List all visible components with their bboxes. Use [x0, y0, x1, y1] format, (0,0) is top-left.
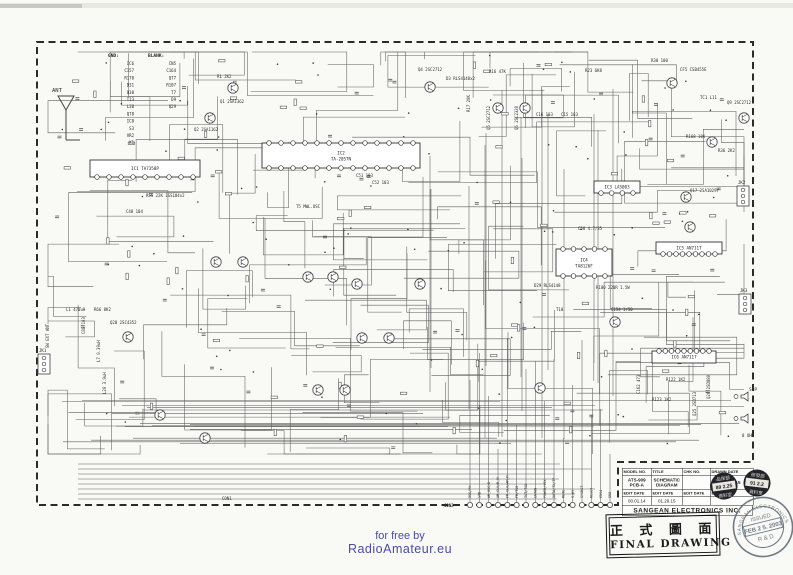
component-label: R17 20K: [466, 95, 471, 112]
con2-pin-label: AM_CLK/R_M: [496, 478, 500, 498]
con2-pin: [514, 502, 519, 507]
junction-dots: [62, 55, 730, 445]
component-label: C51 103: [356, 173, 373, 178]
tb-value-title: SCHEMATIC DIAGRAM: [651, 475, 682, 490]
con2-pin: [607, 502, 612, 507]
component-label: D29 RLS4148: [534, 283, 561, 288]
schematic-text: VR2: [127, 133, 135, 138]
con2-pin: [570, 502, 575, 507]
tb-header-drawndate: DRAWN DATE: [710, 468, 753, 475]
con2-pin: [477, 502, 482, 507]
transistor-symbol: [384, 333, 394, 343]
schematic-text: R107: [166, 83, 176, 88]
schematic-text: Q77: [169, 75, 177, 80]
con2-pin-label: DATA/TX/TP: [552, 478, 556, 498]
schematic-text: TA-2057N: [331, 157, 352, 162]
con2-pin: [561, 502, 566, 507]
jack-jk1: JK1: [38, 348, 50, 374]
transistor-symbol: [685, 222, 695, 232]
component-label: S.P: [749, 387, 757, 393]
title-block-table: MODEL NO. TITLE CHK NO. DRAWN DATE ATS-9…: [622, 468, 754, 506]
component-label: 8 OHM: [742, 433, 755, 438]
component-label: Q26 2SD880: [706, 374, 711, 399]
component-label: TC1 L11: [700, 95, 717, 100]
tb-value-edit2: 01.29.15: [651, 497, 682, 506]
component-label: R55 22K 1SS184x2: [146, 193, 185, 198]
title-block: MODEL NO. TITLE CHK NO. DRAWN DATE ATS-9…: [622, 468, 753, 519]
ic-ic4: IC4TA8126F: [556, 247, 612, 279]
tb-value-chkno: [682, 475, 710, 490]
schematic-text: L30: [127, 104, 135, 109]
tb-header-edit3: EDIT DATE: [682, 490, 710, 497]
tb-header-edit1: EDIT DATE: [622, 490, 651, 497]
component-label: R16 47K: [489, 69, 506, 74]
schematic-text: IC5 AN7117: [676, 246, 702, 251]
con2-pin-label: AM_OSC/D: [487, 482, 491, 498]
con2-pin-label: MUTE: [562, 490, 566, 498]
transistor-symbol: [328, 272, 338, 282]
component-label: C16 103: [536, 112, 553, 117]
component-label: C154 1/50: [611, 307, 633, 312]
transistor-symbol: [667, 78, 677, 88]
component-label: R123 1K2: [652, 397, 672, 402]
con2-pin: [533, 502, 538, 507]
transistor-symbol: [205, 113, 215, 123]
transistor-symbol: [739, 113, 749, 123]
transistor-symbol: [313, 385, 323, 395]
component-label: CON1: [222, 496, 232, 501]
ic-ic3: IC3 LA5003: [594, 181, 640, 195]
transistor-symbol: [681, 192, 691, 202]
component-label: R1 2K2: [217, 74, 232, 79]
schematic-text: GND:: [108, 53, 119, 59]
schematic-text: IC8: [127, 119, 135, 124]
component-label: Q6 2SC2320: [514, 105, 519, 130]
con2-pin-label: GND: [608, 492, 612, 498]
con2-pin-label: TST/TSD: [524, 484, 528, 498]
schematic-text: T7: [171, 90, 176, 95]
component-label: Q20 2SC4352: [110, 320, 137, 325]
con2-pin-label: FM/TSD: [515, 486, 519, 498]
final-drawing-stamp: 正 式 圖 面 FINAL DRAWING: [609, 515, 718, 556]
transistor-symbol: [200, 433, 210, 443]
con2-pin: [579, 502, 584, 507]
component-label: C162 473: [636, 374, 641, 394]
con2-pin-label: POWER/VOX: [543, 479, 547, 498]
component-label: Q25 2SD713: [692, 391, 697, 416]
watermark: for free by RadioAmateur.eu: [320, 530, 480, 556]
tb-header-edit4: EDIT DATE: [710, 490, 753, 497]
component-label: Q9 2SC2712: [727, 100, 752, 105]
con2-pin: [542, 502, 547, 507]
tb-value-drawndate: 99.12.15: [710, 475, 753, 490]
con2-pin-label: OSC/PH: [468, 486, 472, 498]
schematic-text: Q78: [127, 111, 135, 116]
final-drawing-english: FINAL DRAWING: [610, 537, 716, 552]
schematic-text: D31: [127, 83, 135, 88]
tb-header-edit2: EDIT DATE: [651, 490, 682, 497]
transistor-symbol: [357, 333, 367, 343]
component-label: C88 103: [81, 317, 86, 334]
component-label: L7 0.39uH: [96, 340, 101, 362]
component-label: C58 4.7/35: [578, 226, 603, 231]
con2-pin-label: RESET: [590, 488, 594, 498]
schematic-text: Q38: [127, 90, 135, 95]
component-label: R100 220R 1.5W: [596, 285, 630, 290]
ic-ic5: IC5 AN7117: [656, 242, 722, 256]
component-label: D3 RLS4148x2: [446, 76, 475, 81]
component-label: C15 103: [561, 112, 578, 117]
schematic-text: JK2: [738, 180, 746, 185]
transistor-symbol: [123, 332, 133, 342]
speaker-icon: [734, 392, 748, 401]
transistor-symbol: [707, 137, 717, 147]
tb-header-model: MODEL NO.: [622, 468, 651, 475]
con2-pin-label: FM_CLK/AM_M: [506, 476, 510, 498]
antenna-icon: [58, 96, 80, 140]
transistor-symbol: [535, 383, 545, 393]
component-label: CF5 CSB455E: [680, 67, 707, 72]
jack-jk3: JK3: [739, 288, 751, 314]
schematic-text: IC1 TA7358P: [131, 166, 159, 171]
component-label: Q5 2SC2712: [486, 105, 491, 130]
schematic-text: K1: [129, 140, 134, 145]
transistor-symbol: [155, 410, 165, 420]
component-label: ANT: [52, 88, 63, 94]
component-label: R30 100: [651, 58, 668, 63]
con2-pin: [523, 502, 528, 507]
ic-ic2: IC2TA-2057N: [262, 141, 420, 171]
transistor-symbol: [425, 82, 435, 92]
component-label: Q1 2SA1362: [220, 99, 245, 104]
con2-pin: [495, 502, 500, 507]
schematic-text: IC2: [337, 151, 345, 156]
con2-pin: [505, 502, 510, 507]
component-label: R23 6K8: [585, 68, 602, 73]
tb-value-edit1: 00.01.14: [622, 497, 651, 506]
component-label: C48 104: [126, 209, 143, 214]
schematic-text: CON2: [444, 503, 454, 508]
schematic-text: C157: [124, 68, 134, 73]
transistor-symbol: [415, 279, 425, 289]
con2-pin: [486, 502, 491, 507]
tb-header-chkno: CHK NO.: [682, 468, 710, 475]
schematic-text: IC6: [127, 61, 135, 66]
component-label: R168 10K: [686, 134, 706, 139]
transistor-symbol: [352, 279, 362, 289]
component-label: R66 8K2: [94, 307, 111, 312]
schematic-text: Q29: [169, 104, 177, 109]
schematic-text: IC4: [580, 258, 588, 263]
jack-jk2: JK2: [737, 180, 749, 206]
schematic-text: S3: [129, 126, 134, 131]
schematic-text: JK3: [740, 288, 748, 293]
transistor-symbol: [520, 103, 530, 113]
tb-value-edit4: [710, 497, 753, 506]
schematic-text: T13: [127, 97, 135, 102]
transistor-symbol: [610, 317, 620, 327]
con2-pin: [589, 502, 594, 507]
component-label: Q4 2SC2712: [418, 67, 443, 72]
scanned-schematic-page: OSC/PHSTBAM_OSC/DAM_CLK/R_MFM_CLK/AM_MFM…: [0, 0, 793, 575]
watermark-line2: RadioAmateur.eu: [320, 542, 480, 556]
component-label: R36 2K2: [718, 148, 735, 153]
component-label: T5 MWL.OSC: [296, 204, 321, 209]
schematic-text: BLANK:: [148, 53, 164, 59]
schematic-text: C164: [166, 68, 176, 73]
component-label: Q17 2SA1029Y: [690, 188, 719, 193]
speaker-icon: [734, 414, 748, 423]
tb-value-edit3: [682, 497, 710, 506]
con2-pin: [598, 502, 603, 507]
transistor-symbol: [228, 83, 238, 93]
transistor-symbol: [493, 103, 503, 113]
tb-header-title: TITLE: [651, 468, 682, 475]
con2-pin-label: STB: [478, 492, 482, 498]
component-label: Q2 2SA1162: [194, 127, 219, 132]
transistor-symbol: [340, 385, 350, 395]
tb-value-model: ATS-909 PCB-A: [622, 475, 651, 490]
con2-pin-label: SYSRST: [580, 486, 584, 498]
wire-network: [48, 52, 744, 503]
con2-pin-label: EDS4: [599, 490, 603, 498]
transistor-symbol: [238, 257, 248, 267]
component-label: L1 470uH: [66, 307, 86, 312]
con2-pin: [551, 502, 556, 507]
ic-ic6: IC6 AN7117: [652, 349, 716, 363]
con2-pin-label: 9.6V: [571, 490, 575, 498]
con2-pin-label: ENTON: [534, 488, 538, 498]
schematic-text: TA8126F: [575, 264, 593, 269]
transistor-symbol: [303, 272, 313, 282]
schematic-text: D9: [171, 97, 176, 102]
watermark-line1: for free by: [320, 530, 480, 542]
schematic-text: R170: [124, 75, 134, 80]
component-label: L20 3.9uH: [102, 372, 107, 394]
component-label: C52 103: [372, 180, 389, 185]
final-drawing-chinese: 正 式 圖 面: [610, 518, 716, 540]
schematic-text: CN5: [169, 61, 177, 66]
component-label: R122 1K2: [666, 377, 686, 382]
schematic-text: IC3 LA5003: [604, 185, 630, 190]
component-label: T10: [556, 307, 564, 312]
ic-ic1: IC1 TA7358P: [90, 160, 200, 179]
transistor-symbol: [211, 257, 221, 267]
con2-pin: [467, 502, 472, 507]
schematic-text: IC6 AN7117: [671, 355, 697, 360]
component-label: SW EXT ANT: [45, 323, 50, 348]
